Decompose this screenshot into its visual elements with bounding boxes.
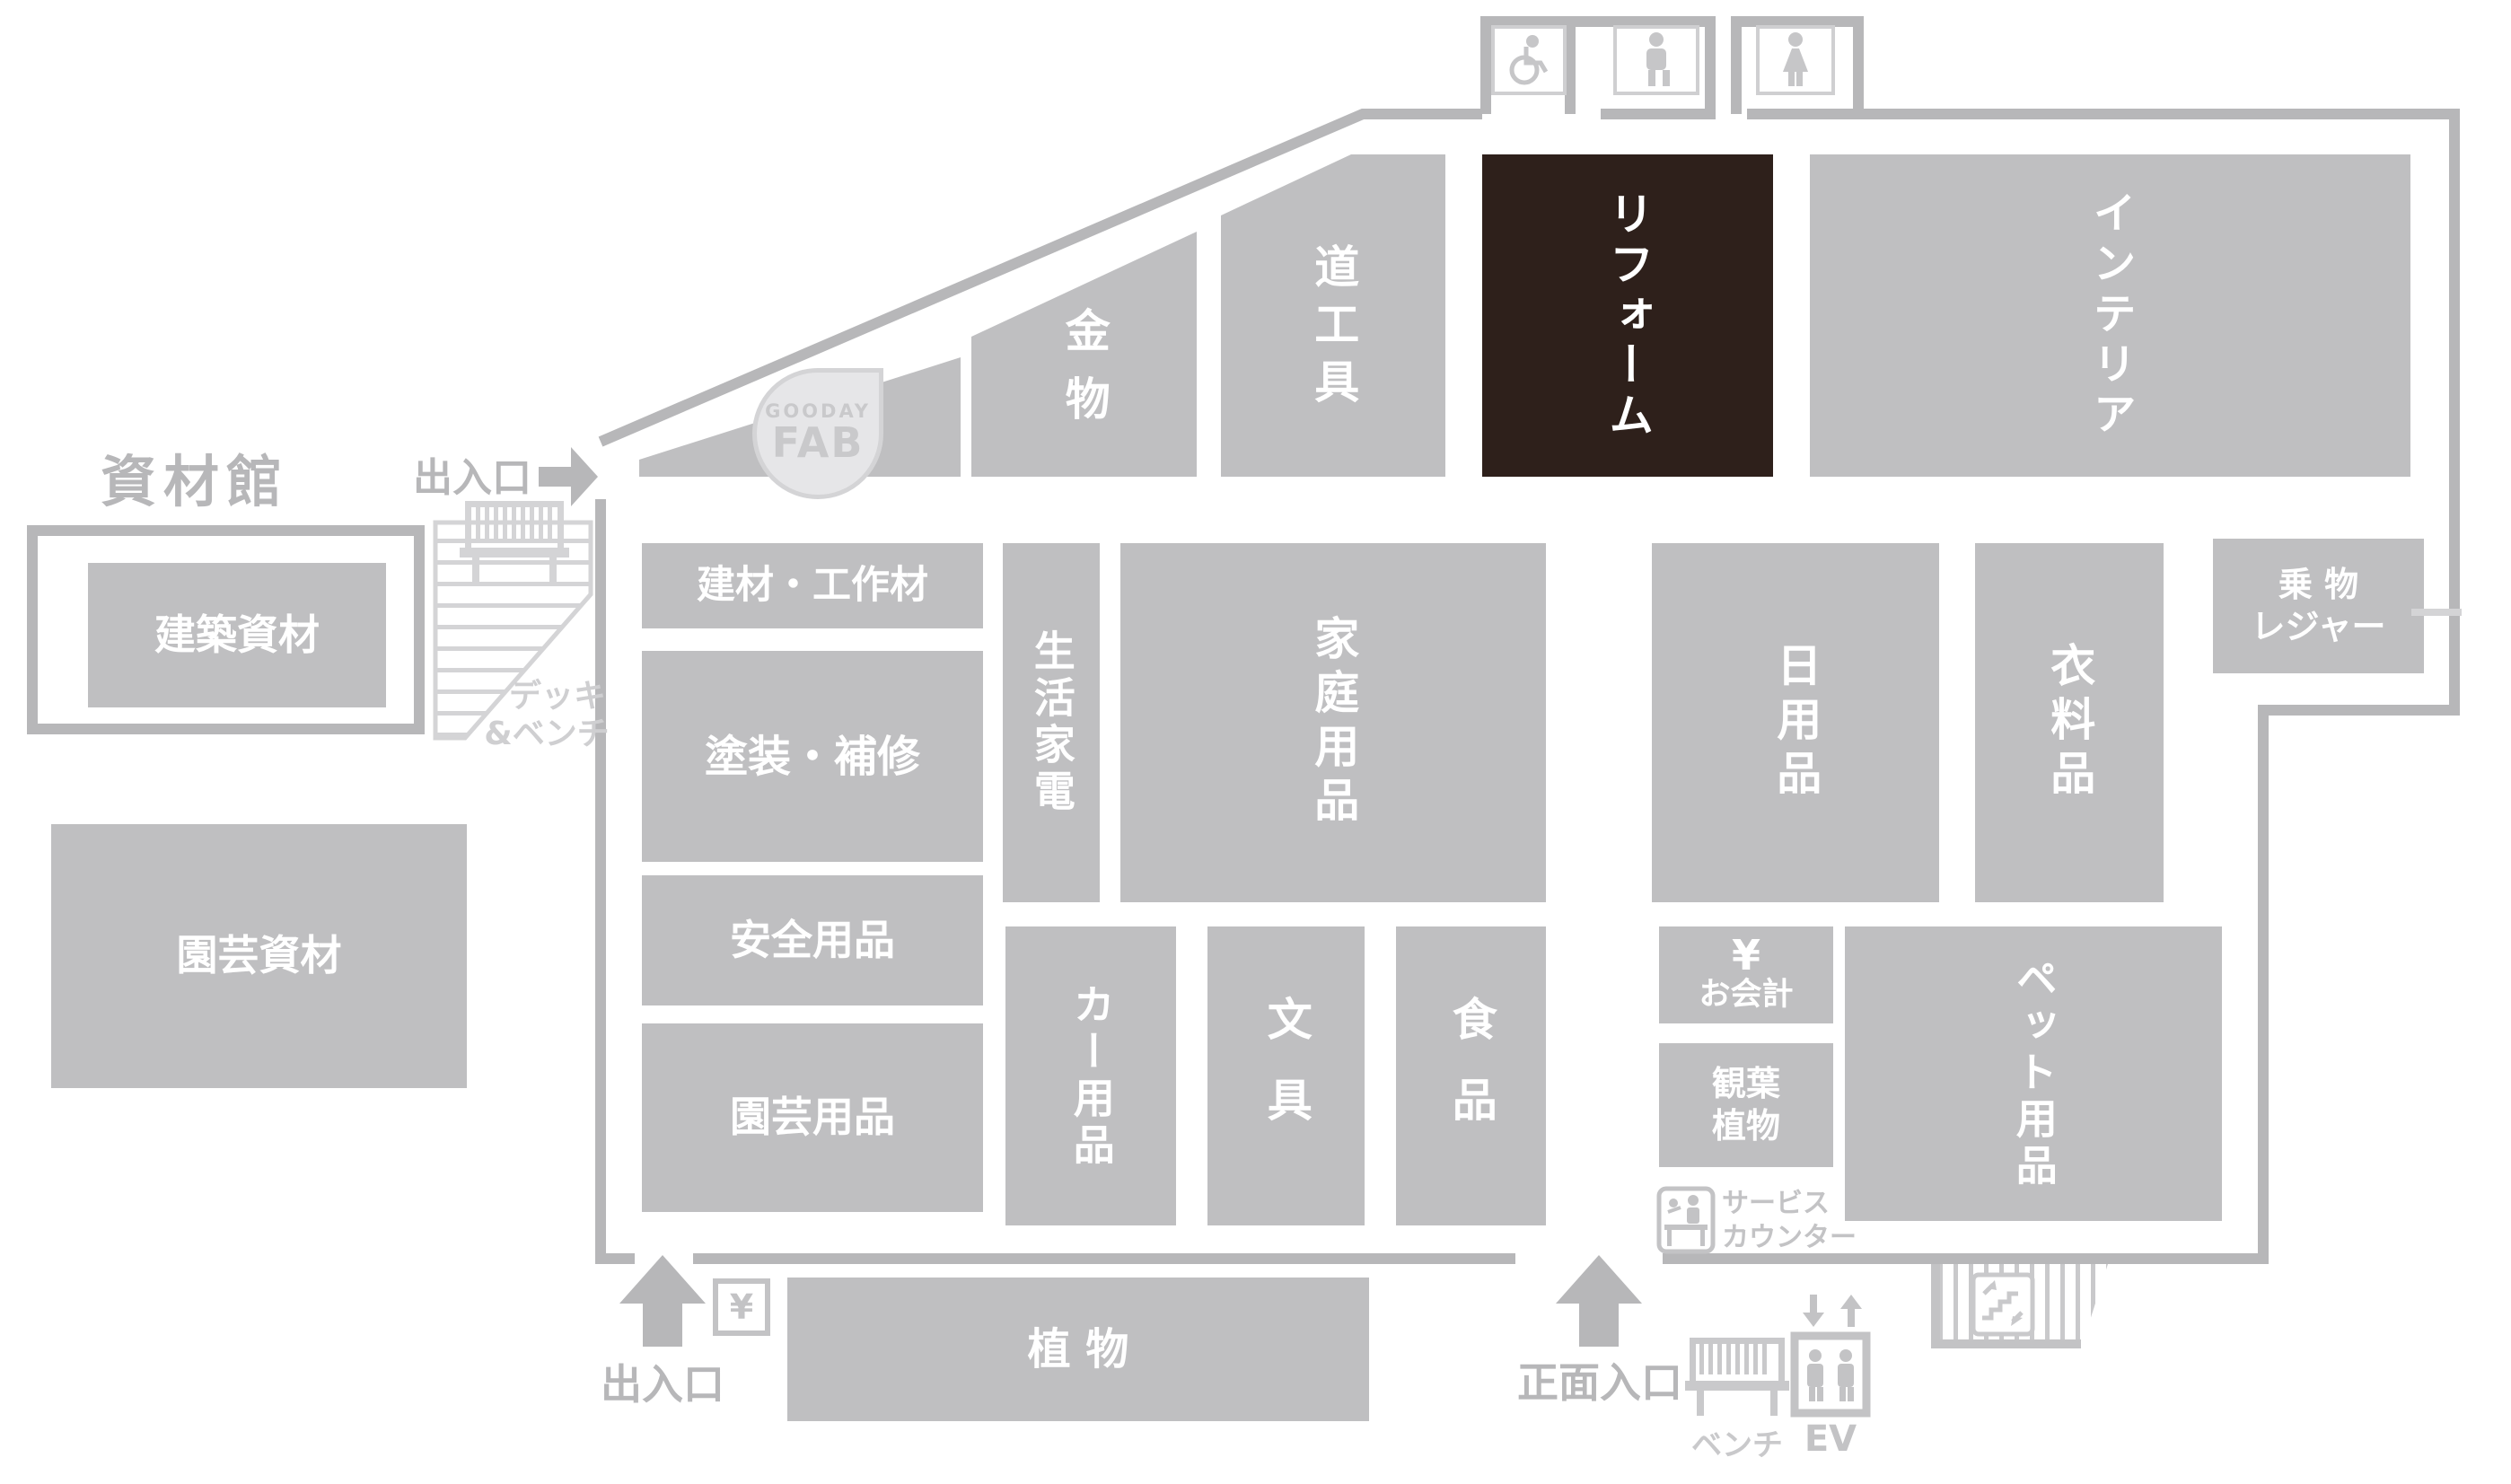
dept-pet-goods: ペット用品	[1845, 926, 2222, 1221]
leisure-dash-extension	[2411, 609, 2462, 616]
side-exit-arrow-icon	[539, 447, 598, 506]
checkout-area: ¥ お会計	[1659, 926, 1833, 1023]
elevator-icon	[1795, 1295, 1866, 1413]
dept-reform-highlighted: リフォーム	[1482, 154, 1773, 477]
checkout-label: お会計	[1699, 976, 1793, 1015]
main-entrance-arrow-icon	[1556, 1255, 1642, 1347]
stairs-icon-box	[1973, 1275, 2033, 1334]
deck-label-line2: &ベンチ	[470, 707, 623, 754]
yen-icon: ¥	[713, 1278, 770, 1336]
dept-lumber-craft: 建材・工作材	[642, 543, 983, 628]
main-entrance-label: 正面入口	[1501, 1350, 1699, 1409]
elevator-label: EV	[1793, 1418, 1868, 1460]
vehicle-leisure-line1: 乗 物	[2278, 564, 2358, 607]
dept-daily-goods: 日用品	[1652, 543, 1939, 902]
yen-symbol: ¥	[1732, 935, 1760, 976]
dept-car-goods: カー用品	[1005, 926, 1176, 1225]
dept-vehicle-leisure: 乗 物 レジャー	[2213, 539, 2424, 673]
dept-home-appliances: 生活家電	[1003, 543, 1100, 902]
left-exit-label: 出入口	[582, 1352, 743, 1411]
bench-icon-bottom	[1685, 1338, 1789, 1416]
dept-clothing: 衣料品	[1975, 543, 2164, 902]
side-exit-label: 出入口	[377, 451, 531, 497]
dept-food: 食品	[1396, 926, 1546, 1225]
dept-garden-materials: 園芸資材	[51, 824, 467, 1088]
store-floor-map: GOODAY FAB 資材館 出入口 建築資材 園芸資材 デッキ &ベンチ 金物…	[0, 0, 2511, 1484]
gooday-fab-line2: FAB	[772, 418, 865, 467]
left-exit-arrow-icon	[619, 1255, 706, 1347]
dept-foliage-plants: 観葉 植物	[1659, 1043, 1833, 1167]
service-counter-line2: カウンター	[1722, 1221, 1919, 1255]
vehicle-leisure-line2: レジャー	[2251, 606, 2385, 649]
dept-building-materials: 建築資材	[88, 563, 386, 707]
dept-paint-repair: 塗装・補修	[642, 651, 983, 862]
dept-plants: 植 物	[787, 1278, 1369, 1421]
stairs-area	[1932, 1264, 2108, 1348]
dept-tools: 道工具	[1221, 154, 1445, 477]
foliage-line2: 植物	[1712, 1105, 1780, 1148]
dept-household-goods: 家庭用品	[1120, 543, 1546, 902]
foliage-line1: 観葉	[1712, 1063, 1780, 1106]
shizaikan-title: 資材館	[101, 436, 289, 517]
dept-garden-goods: 園芸用品	[642, 1023, 983, 1212]
gooday-fab-logo: GOODAY FAB	[752, 368, 883, 499]
dept-stationery: 文具	[1207, 926, 1365, 1225]
restroom-icons	[1493, 27, 1833, 93]
bench-label: ベンチ	[1690, 1420, 1785, 1464]
service-counter-icon	[1659, 1189, 1713, 1251]
dept-interior: インテリア	[1810, 154, 2410, 477]
dept-safety-goods: 安全用品	[642, 875, 983, 1005]
yen-icon-text: ¥	[730, 1287, 753, 1327]
